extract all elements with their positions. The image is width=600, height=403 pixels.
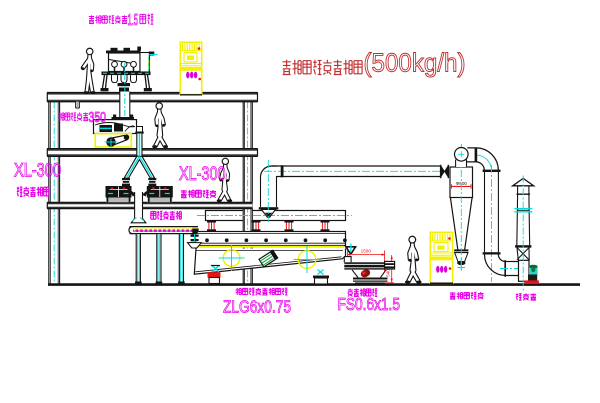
- svg-text:1.5: 1.5: [128, 12, 139, 29]
- svg-text:XL-300: XL-300: [14, 161, 61, 182]
- svg-text:(500kg/h): (500kg/h): [364, 48, 466, 78]
- svg-text:1500: 1500: [361, 249, 372, 254]
- svg-text:350: 350: [89, 110, 107, 126]
- svg-text:FS0.6x1.5: FS0.6x1.5: [338, 294, 401, 314]
- svg-text:ZLG6x0.75: ZLG6x0.75: [223, 297, 291, 317]
- svg-text:XL-300: XL-300: [179, 163, 226, 185]
